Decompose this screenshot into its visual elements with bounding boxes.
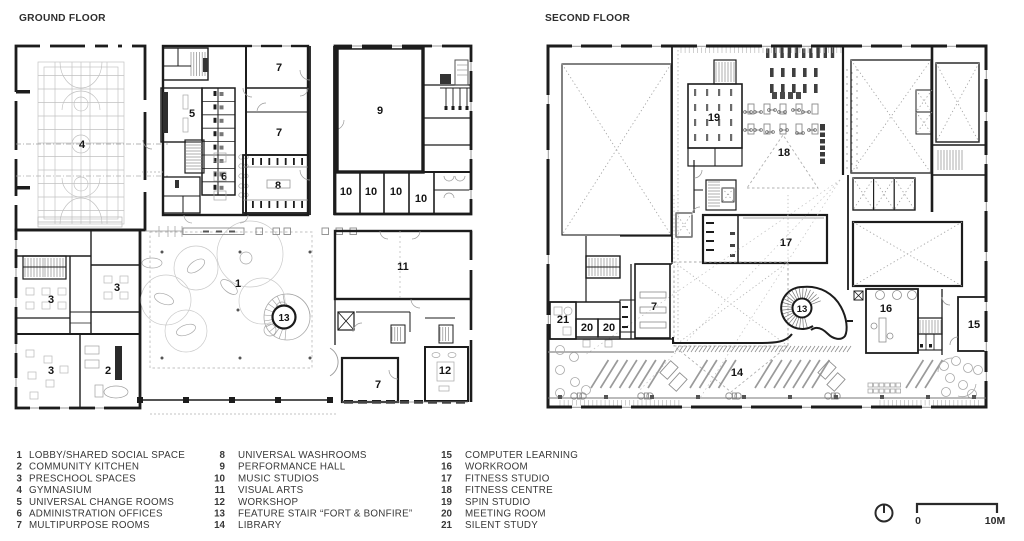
svg-text:ADMINISTRATION OFFICES: ADMINISTRATION OFFICES (29, 509, 163, 520)
svg-text:10: 10 (340, 186, 352, 198)
svg-text:15: 15 (968, 319, 980, 331)
svg-text:18: 18 (778, 147, 790, 159)
svg-text:7: 7 (375, 379, 381, 391)
svg-text:LOBBY/SHARED SOCIAL SPACE: LOBBY/SHARED SOCIAL SPACE (29, 450, 185, 461)
svg-text:1: 1 (235, 278, 241, 290)
svg-text:18: 18 (441, 485, 452, 496)
svg-text:11: 11 (215, 485, 226, 496)
svg-text:SECOND FLOOR: SECOND FLOOR (545, 13, 630, 24)
svg-text:FEATURE STAIR “FORT & BONFIRE”: FEATURE STAIR “FORT & BONFIRE” (238, 509, 412, 520)
svg-text:FITNESS STUDIO: FITNESS STUDIO (465, 473, 550, 484)
svg-text:GYMNASIUM: GYMNASIUM (29, 485, 92, 496)
svg-text:10: 10 (415, 193, 427, 205)
svg-text:8: 8 (275, 180, 281, 192)
svg-text:3: 3 (48, 294, 54, 306)
svg-text:5: 5 (17, 497, 23, 508)
svg-text:12: 12 (439, 365, 451, 377)
svg-text:MUSIC STUDIOS: MUSIC STUDIOS (238, 473, 319, 484)
svg-text:3: 3 (114, 282, 120, 294)
svg-text:PRESCHOOL SPACES: PRESCHOOL SPACES (29, 473, 136, 484)
svg-text:10: 10 (214, 473, 225, 484)
svg-text:10: 10 (390, 186, 402, 198)
svg-text:2: 2 (17, 462, 23, 473)
svg-text:LIBRARY: LIBRARY (238, 520, 282, 531)
svg-text:3: 3 (17, 473, 23, 484)
svg-text:13: 13 (797, 304, 808, 315)
svg-text:7: 7 (17, 520, 23, 531)
svg-text:GROUND FLOOR: GROUND FLOOR (19, 13, 106, 24)
svg-text:2: 2 (105, 365, 111, 377)
svg-text:16: 16 (880, 303, 892, 315)
svg-text:MULTIPURPOSE ROOMS: MULTIPURPOSE ROOMS (29, 520, 150, 531)
svg-text:9: 9 (220, 462, 226, 473)
svg-text:9: 9 (377, 105, 383, 117)
svg-text:3: 3 (48, 365, 54, 377)
svg-text:14: 14 (214, 520, 225, 531)
svg-text:10M: 10M (985, 515, 1006, 527)
svg-text:WORKSHOP: WORKSHOP (238, 497, 298, 508)
svg-text:6: 6 (17, 509, 23, 520)
svg-text:15: 15 (441, 450, 452, 461)
svg-text:19: 19 (441, 497, 452, 508)
svg-text:21: 21 (557, 314, 569, 326)
svg-text:UNIVERSAL WASHROOMS: UNIVERSAL WASHROOMS (238, 450, 367, 461)
svg-text:7: 7 (276, 62, 282, 74)
svg-text:11: 11 (397, 261, 409, 273)
svg-text:4: 4 (17, 485, 23, 496)
svg-text:8: 8 (220, 450, 226, 461)
svg-text:UNIVERSAL CHANGE ROOMS: UNIVERSAL CHANGE ROOMS (29, 497, 174, 508)
svg-text:20: 20 (441, 509, 452, 520)
svg-text:13: 13 (278, 313, 290, 324)
svg-text:COMPUTER LEARNING: COMPUTER LEARNING (465, 450, 578, 461)
svg-text:PERFORMANCE HALL: PERFORMANCE HALL (238, 462, 346, 473)
svg-text:7: 7 (276, 127, 282, 139)
svg-text:21: 21 (441, 520, 452, 531)
svg-text:14: 14 (731, 367, 744, 379)
svg-text:5: 5 (189, 108, 195, 120)
svg-text:4: 4 (79, 139, 86, 151)
svg-text:20: 20 (581, 322, 593, 334)
svg-text:10: 10 (365, 186, 377, 198)
svg-text:COMMUNITY KITCHEN: COMMUNITY KITCHEN (29, 462, 139, 473)
svg-text:WORKROOM: WORKROOM (465, 462, 528, 473)
svg-text:SPIN STUDIO: SPIN STUDIO (465, 497, 530, 508)
svg-text:17: 17 (780, 237, 792, 249)
svg-text:13: 13 (214, 509, 225, 520)
svg-text:SILENT STUDY: SILENT STUDY (465, 520, 538, 531)
svg-text:12: 12 (214, 497, 225, 508)
svg-text:1: 1 (17, 450, 23, 461)
svg-text:19: 19 (708, 112, 720, 124)
svg-text:MEETING ROOM: MEETING ROOM (465, 509, 546, 520)
svg-text:0: 0 (915, 515, 921, 527)
svg-text:17: 17 (441, 473, 452, 484)
svg-text:16: 16 (441, 462, 452, 473)
svg-text:VISUAL ARTS: VISUAL ARTS (238, 485, 304, 496)
svg-text:20: 20 (603, 322, 615, 334)
svg-text:FITNESS CENTRE: FITNESS CENTRE (465, 485, 553, 496)
